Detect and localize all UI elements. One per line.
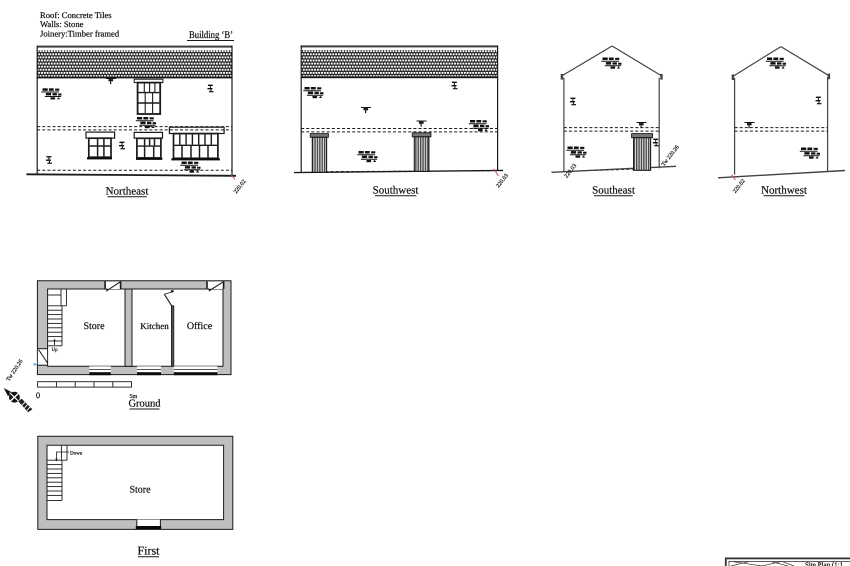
svg-text:Kitchen: Kitchen — [140, 321, 169, 331]
svg-text:Building ‘B’: Building ‘B’ — [189, 30, 233, 41]
svg-text:Up: Up — [52, 347, 59, 353]
svg-text:Store: Store — [83, 321, 105, 332]
svg-text:Down: Down — [70, 451, 83, 457]
svg-text:Office: Office — [187, 321, 213, 332]
svg-text:Ground: Ground — [128, 399, 161, 410]
svg-text:Southwest: Southwest — [373, 185, 419, 197]
svg-text:Northeast: Northeast — [106, 186, 149, 198]
svg-text:Southeast: Southeast — [592, 185, 635, 197]
svg-text:Store: Store — [129, 485, 151, 496]
svg-text:Joinery:Timber framed: Joinery:Timber framed — [40, 28, 120, 38]
svg-text:First: First — [137, 543, 160, 557]
svg-text:Northwest: Northwest — [761, 185, 807, 197]
svg-text:Site Plan (1:1: Site Plan (1:1 — [805, 561, 844, 566]
